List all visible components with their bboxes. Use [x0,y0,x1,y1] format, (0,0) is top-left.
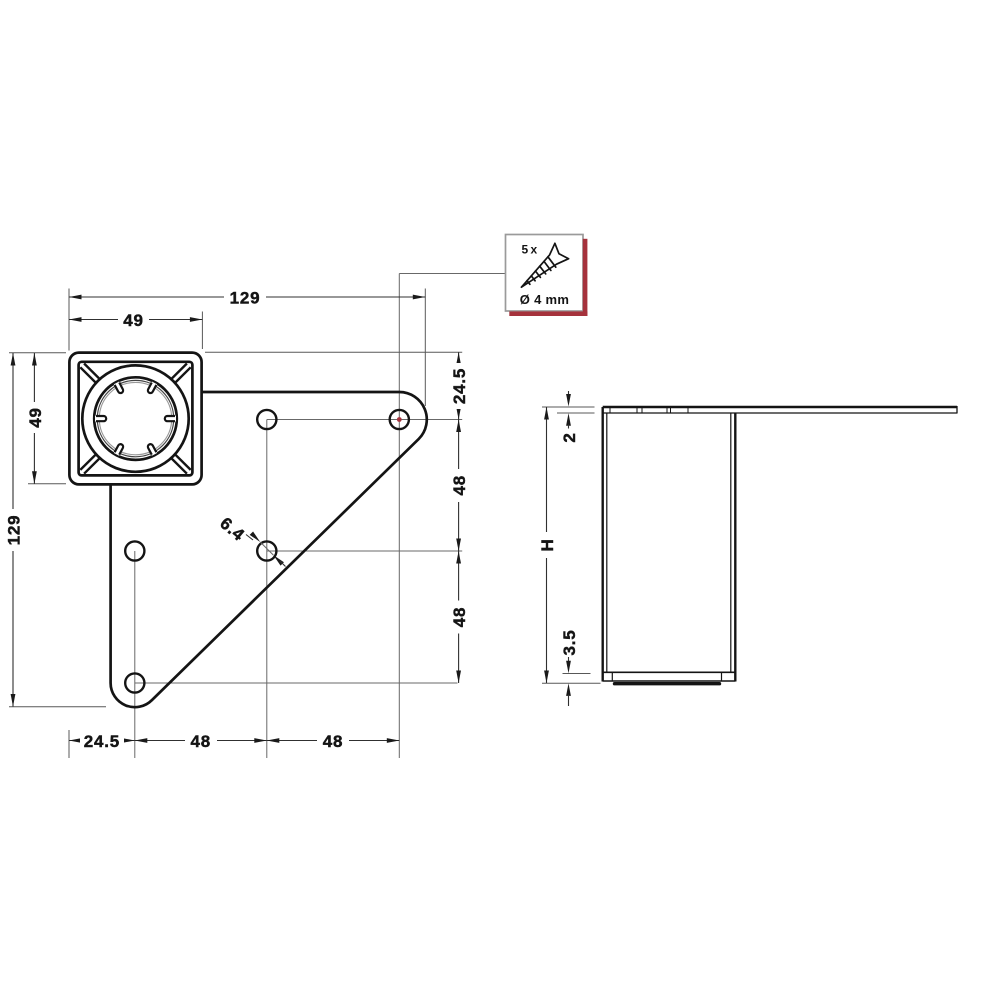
svg-text:49: 49 [26,407,45,428]
svg-text:48: 48 [450,475,469,496]
svg-text:3.5: 3.5 [560,629,579,655]
svg-text:129: 129 [230,289,261,308]
svg-text:49: 49 [123,311,144,330]
svg-text:48: 48 [191,732,212,751]
svg-text:129: 129 [5,515,24,546]
svg-text:48: 48 [323,732,344,751]
svg-text:2: 2 [560,432,579,442]
svg-text:5: 5 [522,243,529,257]
svg-text:x: x [531,243,538,257]
svg-text:Ø 4 mm: Ø 4 mm [520,292,569,307]
svg-text:24.5: 24.5 [450,368,469,404]
svg-text:48: 48 [450,607,469,628]
svg-text:H: H [538,538,557,551]
svg-text:24.5: 24.5 [84,732,120,751]
